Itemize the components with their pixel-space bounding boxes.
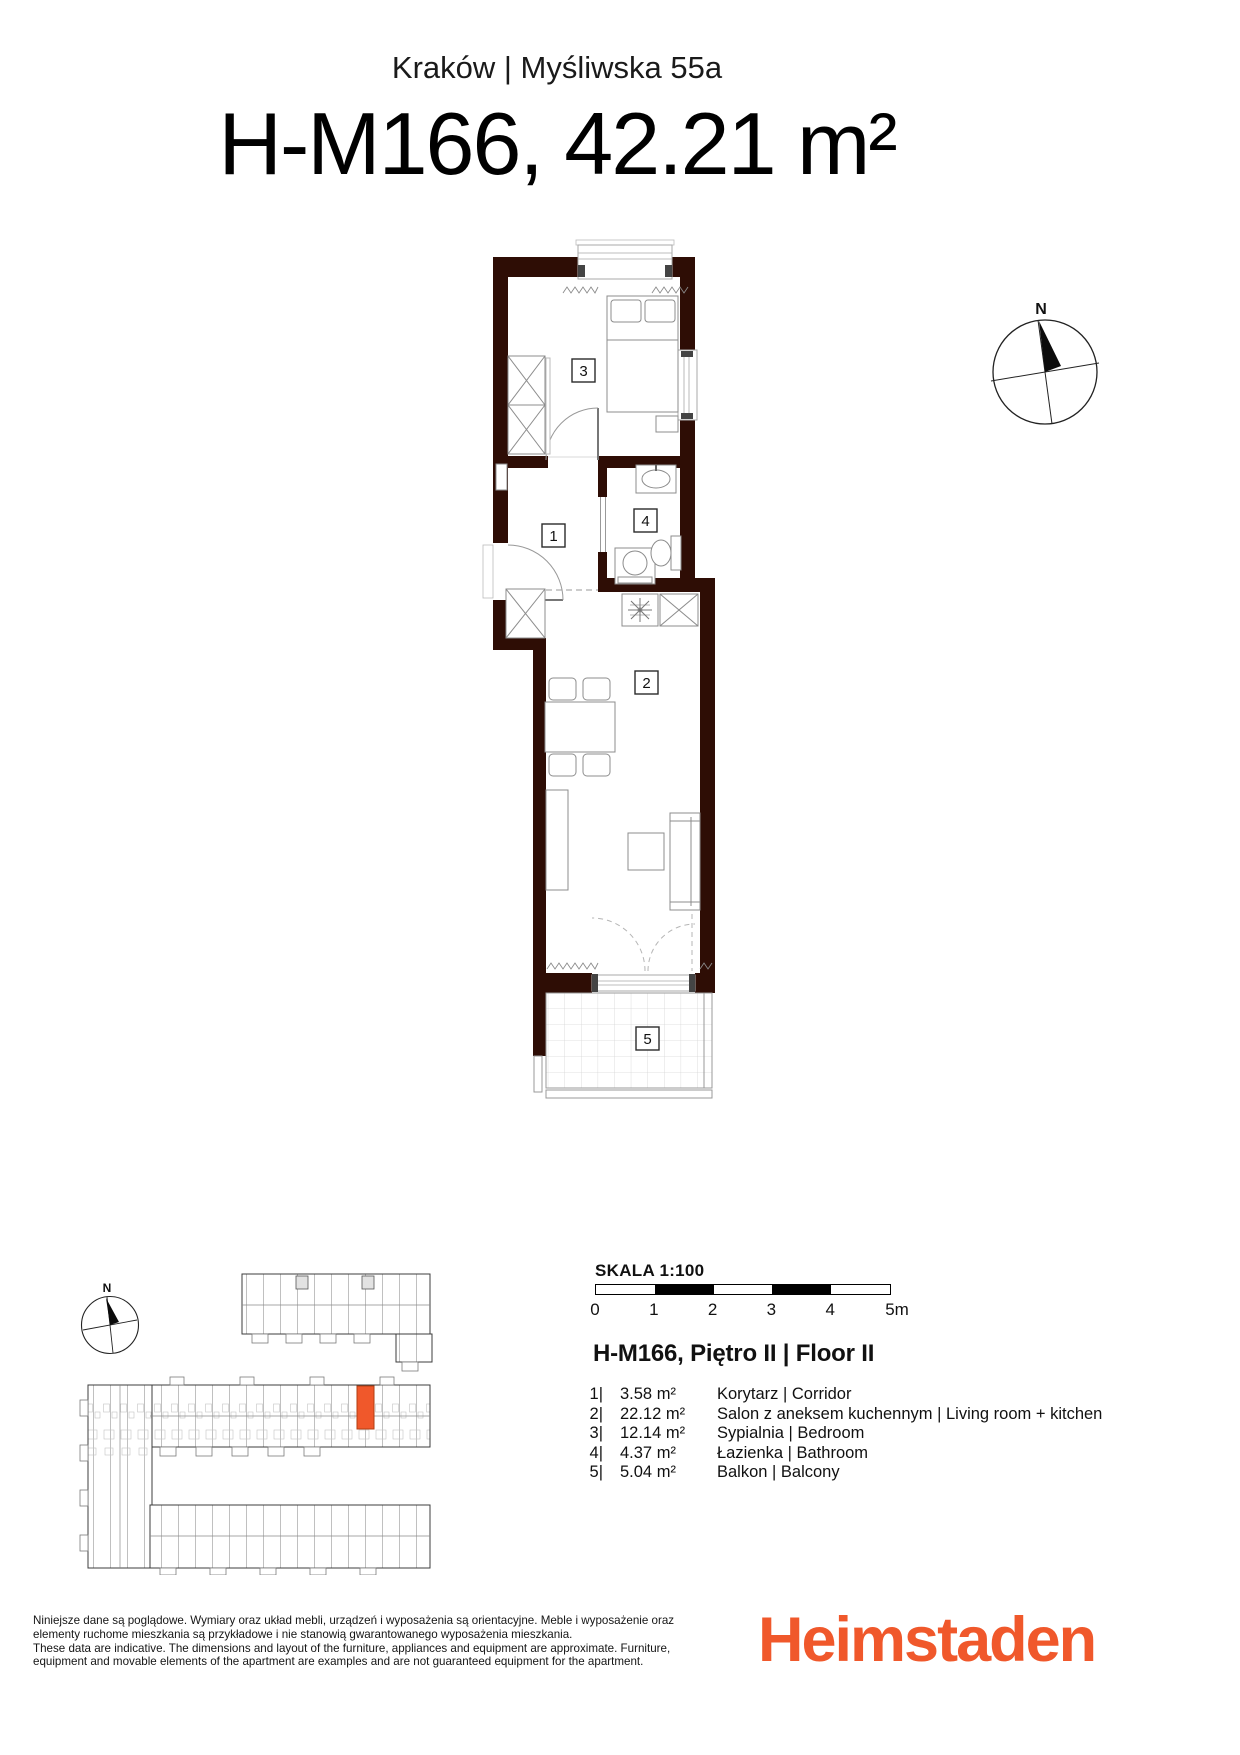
scale-tick-1: 1 xyxy=(649,1300,658,1320)
room-name: Sypialnia | Bedroom xyxy=(717,1424,1180,1444)
room-number: 1| xyxy=(560,1385,603,1405)
site-building-south xyxy=(80,1377,430,1575)
bedroom-window-top xyxy=(576,240,674,279)
room-area: 12.14 m² xyxy=(620,1424,717,1444)
washing-machine xyxy=(615,548,655,584)
sofa xyxy=(670,813,700,910)
label-balcony: 5 xyxy=(643,1031,651,1048)
site-compass-north-label: N xyxy=(103,1281,112,1295)
highlighted-unit xyxy=(357,1386,374,1429)
scale-tick-5: 5m xyxy=(885,1300,909,1320)
compass-needle xyxy=(1039,321,1061,372)
label-bathroom: 4 xyxy=(641,513,649,530)
site-compass: N xyxy=(82,1281,139,1354)
scale-tick-2: 2 xyxy=(708,1300,717,1320)
railing-bottom xyxy=(546,1090,712,1098)
room-name: Balkon | Balcony xyxy=(717,1463,1180,1483)
room-list-item: 3| 12.14 m² Sypialnia | Bedroom xyxy=(560,1424,1180,1444)
bedroom-door xyxy=(546,408,598,460)
room-area: 5.04 m² xyxy=(620,1463,717,1483)
scale-tick-3: 3 xyxy=(767,1300,776,1320)
living-furniture xyxy=(545,678,700,910)
page-title: H-M166, 42.21 m² xyxy=(0,100,1114,188)
site-building-north xyxy=(242,1274,432,1371)
room-number: 4| xyxy=(560,1444,603,1464)
legend: H-M166, Piętro II | Floor II 1| 3.58 m² … xyxy=(560,1340,1180,1483)
hob xyxy=(622,594,658,626)
scale-bar xyxy=(595,1284,891,1295)
coffee-table xyxy=(628,833,664,870)
room-list-item: 2| 22.12 m² Salon z aneksem kuchennym | … xyxy=(560,1405,1180,1425)
room-list-item: 5| 5.04 m² Balkon | Balcony xyxy=(560,1463,1180,1483)
room-area: 3.58 m² xyxy=(620,1385,717,1405)
site-plan: N xyxy=(60,1255,440,1575)
room-number: 5| xyxy=(560,1463,603,1483)
kitchen-units xyxy=(622,594,698,626)
disclaimer-line: These data are indicative. The dimension… xyxy=(33,1642,713,1656)
scale-tick-0: 0 xyxy=(590,1300,599,1320)
compass: N xyxy=(985,290,1110,435)
wardrobe-corridor xyxy=(506,589,545,638)
scale-tick-4: 4 xyxy=(825,1300,834,1320)
scale-label: SKALA 1:100 xyxy=(595,1261,704,1281)
balcony-door xyxy=(592,905,695,992)
label-living: 2 xyxy=(642,675,650,692)
room-name: Łazienka | Bathroom xyxy=(717,1444,1180,1464)
label-corridor: 1 xyxy=(549,528,557,545)
brand-logo: Heimstaden xyxy=(758,1604,1095,1676)
legend-title: H-M166, Piętro II | Floor II xyxy=(593,1340,1180,1368)
bathroom-door xyxy=(601,497,606,552)
room-name: Korytarz | Corridor xyxy=(717,1385,1180,1405)
room-list-item: 1| 3.58 m² Korytarz | Corridor xyxy=(560,1385,1180,1405)
location-subtitle: Kraków | Myśliwska 55a xyxy=(0,50,1114,86)
page: Kraków | Myśliwska 55a H-M166, 42.21 m² xyxy=(0,0,1240,1755)
sideboard xyxy=(546,790,568,890)
disclaimer: Niniejsze dane są poglądowe. Wymiary ora… xyxy=(33,1614,713,1669)
wardrobe-bedroom xyxy=(508,356,550,454)
floor-plan: 1 2 3 4 5 xyxy=(480,235,730,1115)
compass-north-label: N xyxy=(1035,301,1047,318)
room-list: 1| 3.58 m² Korytarz | Corridor 2| 22.12 … xyxy=(560,1385,1180,1483)
fridge xyxy=(660,594,698,626)
room-number: 2| xyxy=(560,1405,603,1425)
label-bedroom: 3 xyxy=(579,363,587,380)
room-number: 3| xyxy=(560,1424,603,1444)
disclaimer-line: equipment and movable elements of the ap… xyxy=(33,1655,713,1669)
room-list-item: 4| 4.37 m² Łazienka | Bathroom xyxy=(560,1444,1180,1464)
room-area: 22.12 m² xyxy=(620,1405,717,1425)
balcony xyxy=(534,993,712,1098)
room-area: 4.37 m² xyxy=(620,1444,717,1464)
disclaimer-line: elementy ruchome mieszkania są przykłado… xyxy=(33,1628,713,1642)
corridor-furniture xyxy=(496,464,598,638)
disclaimer-line: Niniejsze dane są poglądowe. Wymiary ora… xyxy=(33,1614,713,1628)
bedroom-window-side xyxy=(678,350,697,420)
room-name: Salon z aneksem kuchennym | Living room … xyxy=(717,1405,1180,1425)
dining-set xyxy=(545,678,615,776)
railing-left xyxy=(534,1056,542,1092)
site-compass-needle xyxy=(106,1298,119,1325)
